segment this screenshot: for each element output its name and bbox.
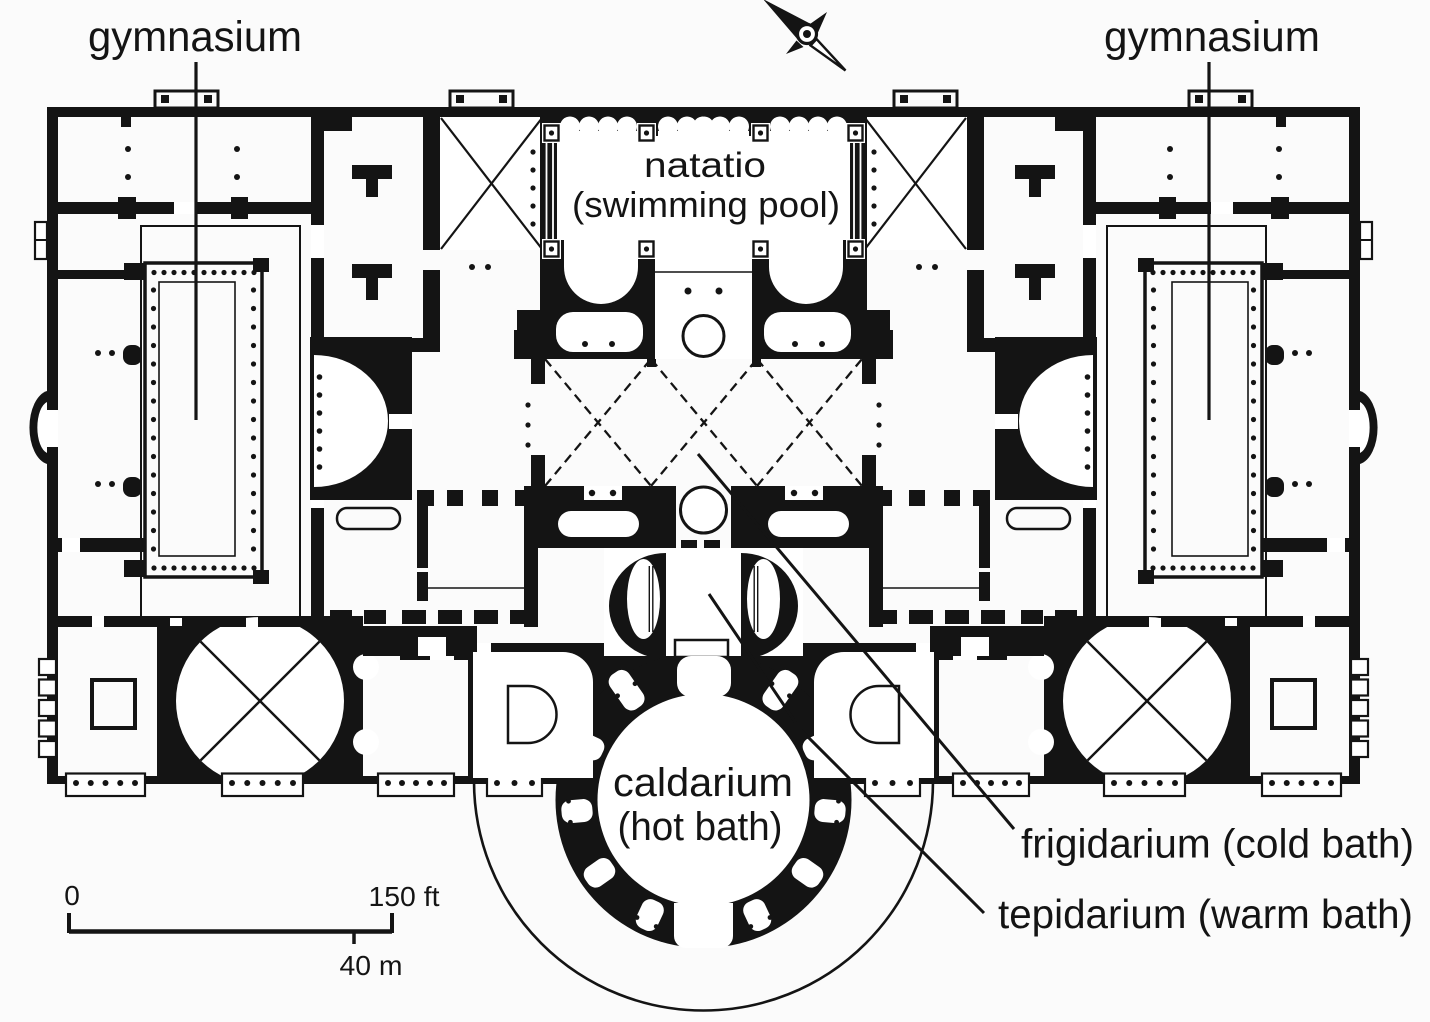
svg-text:0: 0 — [64, 880, 80, 911]
svg-text:frigidarium (cold bath): frigidarium (cold bath) — [1021, 821, 1414, 867]
svg-text:(swimming pool): (swimming pool) — [572, 184, 840, 225]
svg-text:gymnasium: gymnasium — [88, 13, 302, 61]
svg-text:natatio: natatio — [644, 146, 766, 185]
svg-text:caldarium: caldarium — [613, 761, 793, 805]
svg-text:tepidarium (warm bath): tepidarium (warm bath) — [998, 891, 1413, 937]
svg-text:150 ft: 150 ft — [369, 881, 440, 912]
svg-text:gymnasium: gymnasium — [1104, 13, 1320, 61]
svg-text:40 m: 40 m — [340, 950, 403, 981]
svg-text:(hot bath): (hot bath) — [618, 805, 783, 849]
